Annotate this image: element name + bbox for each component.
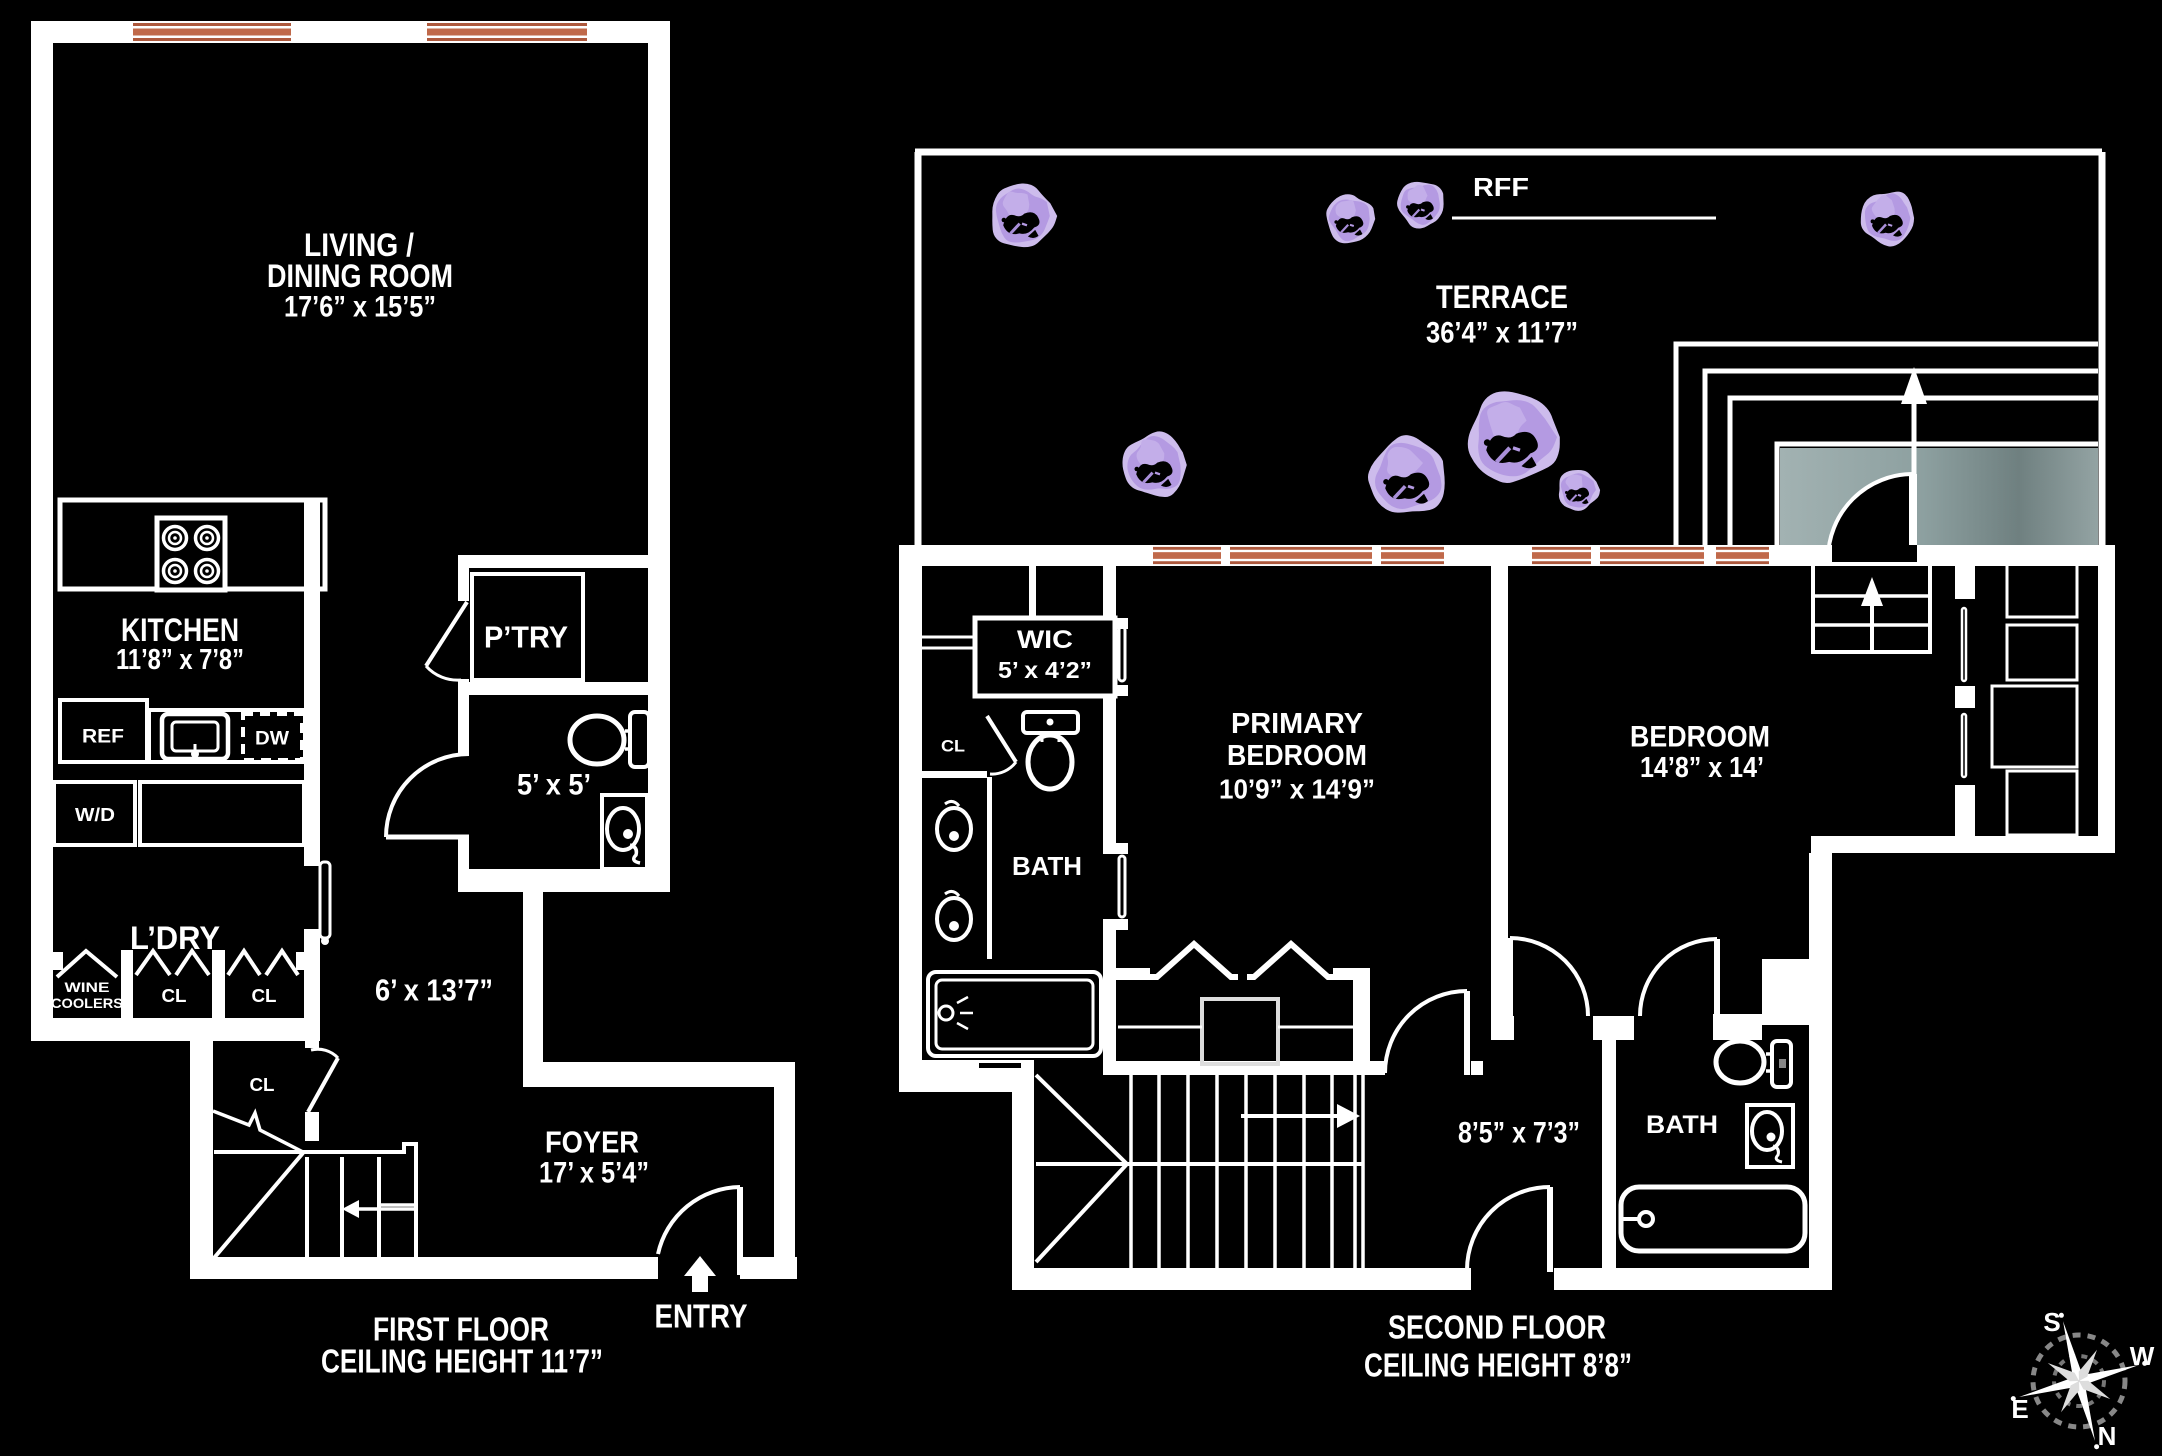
svg-text:SECOND FLOOR: SECOND FLOOR	[1388, 1309, 1606, 1346]
svg-text:17’6” x 15’5”: 17’6” x 15’5”	[284, 291, 436, 324]
svg-text:10’9” x 14’9”: 10’9” x 14’9”	[1219, 774, 1375, 805]
svg-text:COOLERS: COOLERS	[51, 995, 123, 1011]
svg-text:FOYER: FOYER	[545, 1125, 639, 1160]
svg-text:REF: REF	[82, 727, 124, 748]
svg-text:P’TRY: P’TRY	[484, 620, 568, 655]
svg-text:5’ x 5’: 5’ x 5’	[517, 769, 591, 802]
svg-text:BEDROOM: BEDROOM	[1630, 721, 1770, 754]
svg-text:5’ x 4’2”: 5’ x 4’2”	[998, 657, 1092, 683]
svg-text:WINE: WINE	[65, 979, 110, 995]
svg-text:CL: CL	[252, 986, 277, 1006]
svg-text:6’ x 13’7”: 6’ x 13’7”	[375, 973, 493, 1008]
svg-text:WIC: WIC	[1017, 626, 1073, 654]
svg-text:CL: CL	[162, 986, 187, 1006]
svg-text:L’DRY: L’DRY	[130, 920, 220, 956]
svg-text:11’8” x 7’8”: 11’8” x 7’8”	[116, 644, 244, 676]
svg-text:17’ x 5’4”: 17’ x 5’4”	[539, 1157, 649, 1190]
svg-text:KITCHEN: KITCHEN	[121, 612, 239, 648]
svg-text:BATH: BATH	[1012, 851, 1082, 881]
svg-text:8’5” x 7’3”: 8’5” x 7’3”	[1458, 1117, 1580, 1150]
svg-text:14’8” x 14’: 14’8” x 14’	[1640, 752, 1764, 784]
svg-text:E: E	[2011, 1394, 2028, 1424]
svg-text:BATH: BATH	[1646, 1111, 1718, 1139]
svg-text:PRIMARY: PRIMARY	[1231, 708, 1363, 740]
svg-text:CL: CL	[941, 737, 965, 756]
svg-text:CL: CL	[250, 1075, 275, 1095]
svg-text:BEDROOM: BEDROOM	[1227, 740, 1367, 772]
svg-text:36’4” x 11’7”: 36’4” x 11’7”	[1426, 317, 1578, 350]
svg-text:N: N	[2098, 1421, 2117, 1451]
svg-text:ENTRY: ENTRY	[655, 1298, 748, 1335]
svg-text:RFF: RFF	[1473, 172, 1529, 202]
svg-text:DINING ROOM: DINING ROOM	[267, 258, 453, 294]
svg-text:CEILING HEIGHT 11’7”: CEILING HEIGHT 11’7”	[321, 1343, 603, 1380]
svg-text:TERRACE: TERRACE	[1436, 279, 1568, 315]
svg-text:W/D: W/D	[75, 805, 115, 825]
svg-text:S: S	[2043, 1307, 2060, 1337]
svg-text:CEILING HEIGHT 8’8”: CEILING HEIGHT 8’8”	[1364, 1347, 1632, 1384]
svg-text:DW: DW	[255, 729, 289, 750]
svg-text:W: W	[2130, 1341, 2155, 1371]
